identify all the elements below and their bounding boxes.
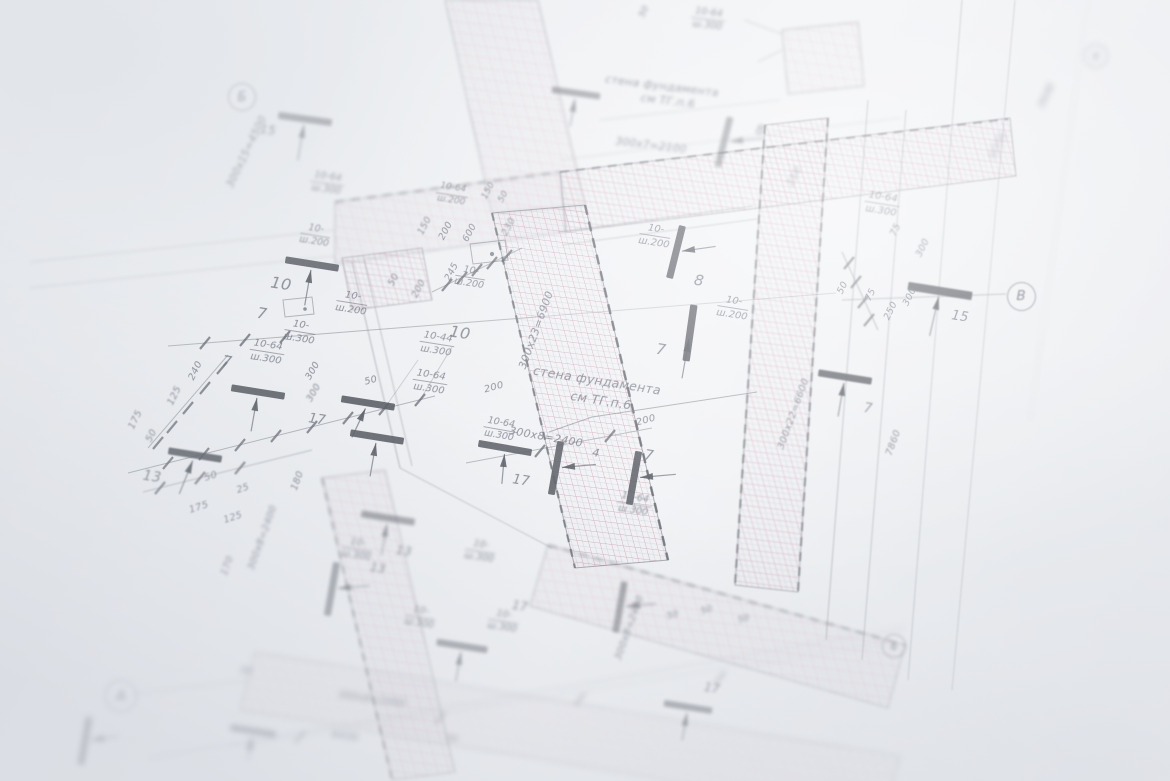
section-cut-marker: [278, 112, 332, 161]
section-number: 17: [703, 681, 721, 695]
axis-bubble: 6: [882, 634, 906, 658]
rebar-mark: 10-ш.300: [403, 604, 436, 632]
section-cut-marker: [350, 429, 404, 476]
blueprint-photo: 300х23=6900стена фундаментасм ТГ.п.6300х…: [0, 0, 1170, 781]
rebar-mark: 10-ш.300: [283, 317, 318, 347]
section-number: 13: [395, 544, 413, 558]
dim-label: 50: [239, 667, 252, 678]
section-number: 15: [259, 123, 276, 137]
section-cut-marker: [231, 384, 285, 431]
rebar-mark: 10-64ш.300: [616, 491, 653, 520]
section-cut-marker: [666, 225, 716, 279]
rebar-mark: 10-ш.200: [298, 222, 331, 250]
section-number: 7: [221, 354, 233, 370]
section-number: 13: [142, 469, 162, 486]
section-cut-marker: [285, 256, 339, 305]
rebar-mark: 10-64ш.200: [434, 181, 469, 209]
section-number: 17: [308, 412, 327, 428]
rebar-mark: 10-ш.200: [638, 221, 673, 251]
section-number: 10: [269, 274, 292, 293]
axis-bubble: 6: [1084, 44, 1108, 68]
section-number: 17: [512, 473, 531, 489]
section-cut-marker: [682, 304, 698, 378]
axis-bubble: Б: [228, 83, 256, 111]
rebar-mark: 10-ш.200: [335, 288, 370, 318]
section-cut-marker: [324, 562, 370, 616]
dim-label: 50: [445, 735, 458, 746]
axis-bubble: В: [1007, 282, 1036, 311]
section-number: 7: [256, 306, 268, 322]
rebar-mark: 10-ш.300: [340, 536, 373, 564]
section-cut-marker: [436, 639, 488, 682]
rebar-mark: 10-64ш.300: [248, 337, 287, 367]
section-cut-marker: [341, 395, 395, 437]
rebar-mark: 10-ш.200: [716, 293, 751, 323]
section-cut-marker: [230, 724, 276, 760]
axis-bubble: А: [105, 680, 137, 712]
section-number: 8: [755, 124, 765, 138]
rebar-mark: 10-44ш.300: [418, 329, 457, 359]
section-cut-marker: [551, 86, 600, 126]
rebar-mark: 10-64ш.300: [309, 170, 346, 198]
rebar-mark: 10-64ш.300: [411, 367, 450, 397]
section-number: 13: [369, 561, 387, 575]
section-cut-marker: [664, 700, 713, 740]
section-cut-marker: [548, 441, 596, 495]
rebar-mark: 10-64ш.300: [690, 6, 726, 34]
rebar-mark: 10-ш.300: [463, 538, 496, 566]
rebar-mark: 10-ш.200: [453, 264, 486, 292]
section-number: 7: [655, 342, 667, 358]
rebar-mark: 10-ш.300: [486, 608, 519, 636]
section-number: 15: [951, 309, 970, 325]
rebar-mark: 10-64ш.300: [863, 189, 902, 219]
section-cut-marker: [78, 717, 119, 766]
section-number: 7: [863, 402, 874, 416]
